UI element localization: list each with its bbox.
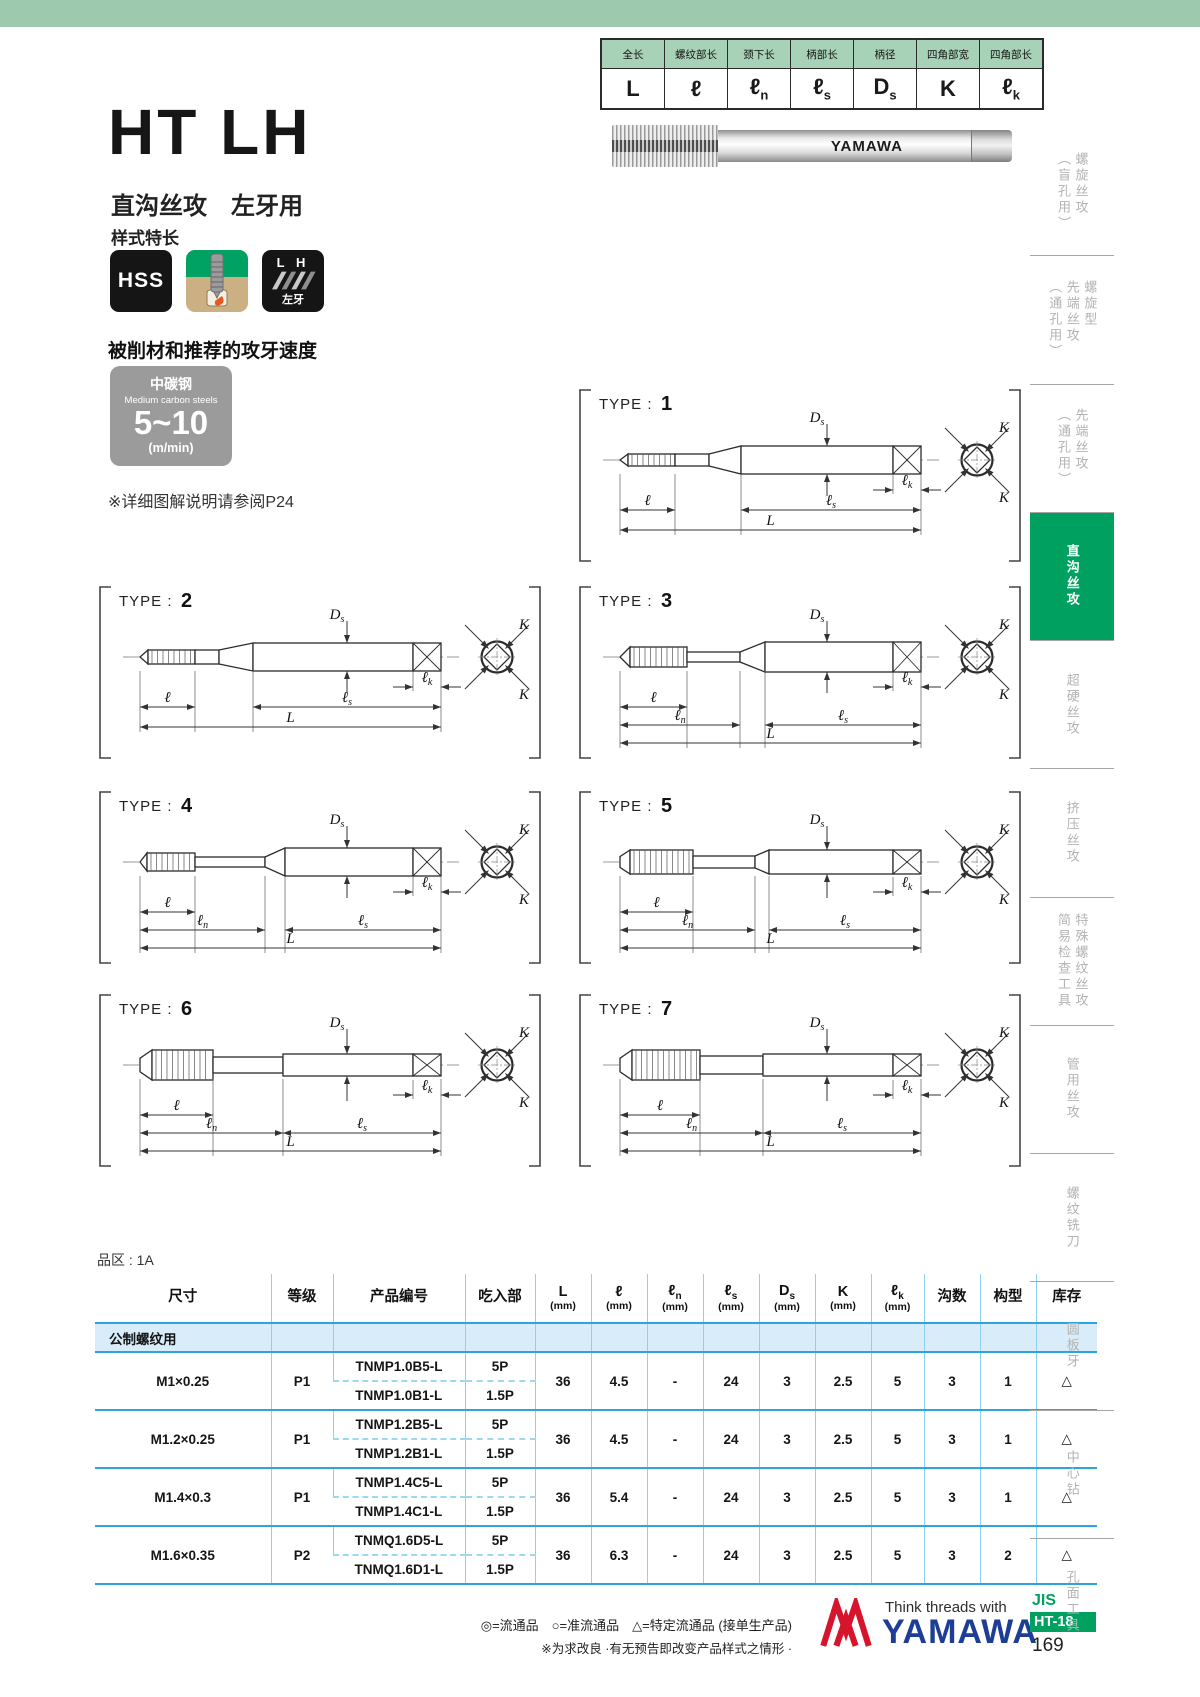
section-cell: [815, 1323, 871, 1352]
sidebar-tab-11[interactable]: 中心钻: [1030, 1411, 1114, 1538]
table-cell: 3: [924, 1526, 980, 1584]
svg-text:K: K: [518, 617, 530, 633]
table-cell: M1×0.25: [95, 1352, 271, 1410]
svg-text:ℓs: ℓs: [358, 913, 368, 931]
svg-text:Ds: Ds: [809, 1015, 825, 1033]
table-cell: 36: [535, 1352, 591, 1410]
legend-name: 颈下长: [728, 39, 791, 69]
svg-text:K: K: [518, 1025, 530, 1041]
legend-name: 螺纹部长: [665, 39, 728, 69]
legend-name: 四角部长: [980, 39, 1044, 69]
legend-symbol: K: [917, 69, 980, 110]
table-cell: 1.5P: [465, 1381, 535, 1410]
svg-text:TYPE :: TYPE :: [599, 798, 653, 815]
table-cell: 3: [924, 1410, 980, 1468]
svg-text:ℓn: ℓn: [686, 1116, 697, 1134]
stock-legend: ◎=流通品 ○=准流通品 △=特定流通品 (接单生产品) ※为求改良 ·有无预告…: [420, 1615, 792, 1657]
sidebar-tab-9[interactable]: 螺纹铣刀: [1030, 1154, 1114, 1281]
svg-text:L: L: [765, 931, 774, 947]
table-cell: 24: [703, 1468, 759, 1526]
table-cell: TNMP1.4C1-L: [333, 1497, 465, 1526]
table-cell: TNMP1.0B5-L: [333, 1352, 465, 1381]
diagram-type-4: TYPE : 4ℓℓsℓnLℓkDsKK: [95, 780, 545, 975]
svg-text:1: 1: [661, 393, 672, 415]
logo-brand: YAMAWA: [882, 1616, 1038, 1648]
svg-text:5: 5: [661, 795, 672, 817]
tap-shank-section: YAMAWA: [718, 130, 971, 162]
svg-text:L: L: [285, 1134, 294, 1150]
table-cell: TNMQ1.6D5-L: [333, 1526, 465, 1555]
speed-unit: (m/min): [110, 441, 232, 455]
table-cell: 1.5P: [465, 1555, 535, 1584]
table-cell: 2.5: [815, 1526, 871, 1584]
svg-text:Ds: Ds: [329, 1015, 345, 1033]
legend-symbol: ℓk: [980, 69, 1044, 110]
svg-text:ℓk: ℓk: [902, 670, 913, 688]
sidebar-tab-3[interactable]: 先端丝攻 （通孔用）: [1030, 385, 1114, 512]
svg-text:ℓn: ℓn: [197, 913, 208, 931]
table-cell: M1.4×0.3: [95, 1468, 271, 1526]
table-cell: 24: [703, 1352, 759, 1410]
table-cell: 5: [871, 1526, 924, 1584]
top-green-bar: [0, 0, 1200, 27]
diagram-type-2: TYPE : 2ℓℓsLℓkDsKK: [95, 575, 545, 770]
svg-text:Ds: Ds: [809, 410, 825, 428]
legend-symbol: L: [601, 69, 665, 110]
table-cell: 1: [980, 1410, 1036, 1468]
table-cell: 3: [924, 1468, 980, 1526]
svg-text:ℓk: ℓk: [902, 473, 913, 491]
section-row: 公制螺纹用: [95, 1323, 1097, 1352]
sidebar-tab-7[interactable]: 特殊螺纹丝攻 简易检查工具: [1030, 898, 1114, 1025]
legend-symbol: ℓn: [728, 69, 791, 110]
left-hand-thread-icon: L H 左牙: [262, 250, 324, 312]
yamawa-logo: Think threads with YAMAWA: [818, 1598, 1038, 1650]
svg-text:K: K: [998, 420, 1010, 436]
table-cell: TNMP1.2B1-L: [333, 1439, 465, 1468]
sidebar-tab-10[interactable]: 圆板牙: [1030, 1282, 1114, 1409]
column-header: 吃入部: [465, 1274, 535, 1323]
svg-text:7: 7: [661, 998, 672, 1020]
table-cell: 3: [759, 1468, 815, 1526]
stock-legend-line1: ◎=流通品 ○=准流通品 △=特定流通品 (接单生产品): [420, 1615, 792, 1634]
column-header: K(mm): [815, 1274, 871, 1323]
svg-text:ℓ: ℓ: [650, 690, 656, 706]
legend-name: 全长: [601, 39, 665, 69]
svg-text:ℓn: ℓn: [206, 1116, 217, 1134]
table-cell: P1: [271, 1468, 333, 1526]
column-header: 沟数: [924, 1274, 980, 1323]
region-label: 品区 : 1A: [97, 1250, 154, 1270]
svg-text:K: K: [518, 892, 530, 908]
table-cell: P2: [271, 1526, 333, 1584]
section-cell: [759, 1323, 815, 1352]
svg-text:ℓk: ℓk: [902, 875, 913, 893]
speed-heading: 被削材和推荐的攻牙速度: [108, 336, 317, 363]
svg-text:Ds: Ds: [329, 812, 345, 830]
column-header: 产品编号: [333, 1274, 465, 1323]
sidebar-tab-1[interactable]: 螺旋丝攻 （盲孔用）: [1030, 128, 1114, 255]
table-cell: 24: [703, 1410, 759, 1468]
diagram-type-3: TYPE : 3ℓℓsℓnLℓkDsKK: [575, 575, 1025, 770]
svg-text:L: L: [765, 726, 774, 742]
svg-text:K: K: [998, 822, 1010, 838]
svg-text:ℓ: ℓ: [164, 690, 170, 706]
svg-text:ℓn: ℓn: [674, 708, 685, 726]
table-cell: -: [647, 1468, 703, 1526]
table-cell: 36: [535, 1410, 591, 1468]
table-cell: 5: [871, 1468, 924, 1526]
section-label: 公制螺纹用: [95, 1323, 271, 1352]
column-header: Ds(mm): [759, 1274, 815, 1323]
sidebar-tab-8[interactable]: 管用丝攻: [1030, 1026, 1114, 1153]
table-cell: 2.5: [815, 1352, 871, 1410]
column-header: ℓs(mm): [703, 1274, 759, 1323]
section-cell: [924, 1323, 980, 1352]
table-cell: 4.5: [591, 1352, 647, 1410]
diagram-type-6: TYPE : 6ℓℓsℓnLℓkDsKK: [95, 983, 545, 1178]
tap-thread-section: [612, 125, 718, 167]
legend-symbol: ℓs: [791, 69, 854, 110]
svg-text:K: K: [518, 687, 530, 703]
svg-text:K: K: [998, 617, 1010, 633]
table-cell: 5P: [465, 1410, 535, 1439]
svg-text:K: K: [998, 892, 1010, 908]
table-cell: -: [647, 1410, 703, 1468]
svg-text:Ds: Ds: [809, 607, 825, 625]
svg-text:L: L: [285, 931, 294, 947]
svg-text:L: L: [765, 513, 774, 529]
svg-text:ℓk: ℓk: [902, 1078, 913, 1096]
section-cell: [703, 1323, 759, 1352]
table-cell: 3: [759, 1526, 815, 1584]
svg-text:2: 2: [181, 590, 192, 612]
svg-text:ℓ: ℓ: [657, 1098, 663, 1114]
table-cell: 5P: [465, 1526, 535, 1555]
svg-text:K: K: [998, 687, 1010, 703]
product-table: 尺寸等级产品编号吃入部L(mm)ℓ(mm)ℓn(mm)ℓs(mm)Ds(mm)K…: [95, 1274, 1097, 1585]
reference-note: ※详细图解说明请参阅P24: [108, 488, 294, 512]
dimension-legend-table: 全长螺纹部长颈下长柄部长柄径四角部宽四角部长 LℓℓnℓsDsKℓk: [600, 38, 1044, 110]
svg-text:ℓk: ℓk: [422, 670, 433, 688]
table-cell: M1.6×0.35: [95, 1526, 271, 1584]
table-cell: TNMP1.2B5-L: [333, 1410, 465, 1439]
speed-range: 5~10: [110, 406, 232, 441]
table-cell: M1.2×0.25: [95, 1410, 271, 1468]
svg-text:K: K: [998, 1025, 1010, 1041]
legend-name: 柄径: [854, 39, 917, 69]
table-cell: -: [647, 1352, 703, 1410]
column-header: ℓ(mm): [591, 1274, 647, 1323]
lh-left-thread-label: 左牙: [282, 291, 304, 307]
section-cell: [333, 1323, 465, 1352]
catalog-page: HT LH 直沟丝攻 左牙用 样式特长 HSS L H: [0, 0, 1200, 1697]
svg-text:4: 4: [181, 795, 193, 817]
table-cell: 3: [759, 1410, 815, 1468]
svg-text:TYPE :: TYPE :: [599, 1001, 653, 1018]
product-row: M1.2×0.25P1TNMP1.2B5-L5P364.5-2432.5531△: [95, 1410, 1097, 1439]
table-cell: 3: [924, 1352, 980, 1410]
blind-hole-tapping-icon: [186, 250, 248, 312]
column-header: 尺寸: [95, 1274, 271, 1323]
tap-square-end: [971, 130, 1012, 162]
product-row: M1×0.25P1TNMP1.0B5-L5P364.5-2432.5531△: [95, 1352, 1097, 1381]
product-row: M1.4×0.3P1TNMP1.4C5-L5P365.4-2432.5531△: [95, 1468, 1097, 1497]
left-hand-coil-icon: [265, 270, 321, 291]
svg-text:ℓk: ℓk: [422, 875, 433, 893]
legend-symbol-row: LℓℓnℓsDsKℓk: [601, 69, 1043, 110]
sidebar-tab-4[interactable]: 直沟丝攻: [1030, 513, 1114, 640]
table-cell: 5.4: [591, 1468, 647, 1526]
column-header: L(mm): [535, 1274, 591, 1323]
yamawa-mark-icon: [818, 1598, 874, 1650]
svg-text:ℓn: ℓn: [682, 913, 693, 931]
table-cell: 1.5P: [465, 1439, 535, 1468]
table-cell: 1: [980, 1468, 1036, 1526]
tap-product-photo: YAMAWA: [612, 114, 1012, 178]
table-cell: 2: [980, 1526, 1036, 1584]
tap-brand-marking: YAMAWA: [831, 138, 903, 155]
table-cell: 36: [535, 1526, 591, 1584]
section-cell: [980, 1323, 1036, 1352]
diagram-type-1: TYPE : 1ℓℓsLℓkDsKK: [575, 378, 1025, 573]
sidebar-tab-12[interactable]: 孔面工具: [1030, 1539, 1114, 1666]
svg-text:ℓs: ℓs: [838, 708, 848, 726]
svg-text:ℓ: ℓ: [173, 1098, 179, 1114]
column-header: ℓk(mm): [871, 1274, 924, 1323]
svg-text:ℓs: ℓs: [840, 913, 850, 931]
svg-text:L: L: [765, 1134, 774, 1150]
table-cell: 5: [871, 1410, 924, 1468]
svg-text:K: K: [518, 822, 530, 838]
disclaimer-note: ※为求改良 ·有无预告即改变产品样式之情形 ·: [420, 1638, 792, 1657]
svg-text:ℓk: ℓk: [422, 1078, 433, 1096]
svg-text:TYPE :: TYPE :: [119, 1001, 173, 1018]
speed-card: 中碳钢 Medium carbon steels 5~10 (m/min): [110, 366, 232, 466]
svg-text:ℓs: ℓs: [357, 1116, 367, 1134]
svg-text:Ds: Ds: [809, 812, 825, 830]
section-cell: [535, 1323, 591, 1352]
legend-name-row: 全长螺纹部长颈下长柄部长柄径四角部宽四角部长: [601, 39, 1043, 69]
table-cell: 1.5P: [465, 1497, 535, 1526]
table-cell: 5: [871, 1352, 924, 1410]
svg-text:K: K: [998, 490, 1010, 506]
table-cell: P1: [271, 1410, 333, 1468]
page-title: HT LH: [108, 100, 311, 164]
column-header: ℓn(mm): [647, 1274, 703, 1323]
tapping-illustration-icon: [186, 250, 248, 312]
table-header-row: 尺寸等级产品编号吃入部L(mm)ℓ(mm)ℓn(mm)ℓs(mm)Ds(mm)K…: [95, 1274, 1097, 1323]
features-section-label: 样式特长: [111, 224, 179, 249]
svg-text:3: 3: [661, 590, 672, 612]
svg-text:TYPE :: TYPE :: [599, 593, 653, 610]
page-subtitle: 直沟丝攻 左牙用: [111, 186, 303, 221]
legend-symbol: ℓ: [665, 69, 728, 110]
column-header: 构型: [980, 1274, 1036, 1323]
svg-text:K: K: [518, 1095, 530, 1111]
table-cell: 5P: [465, 1468, 535, 1497]
legend-symbol: Ds: [854, 69, 917, 110]
svg-text:ℓ: ℓ: [164, 895, 170, 911]
svg-text:Ds: Ds: [329, 607, 345, 625]
sidebar-tab-6[interactable]: 挤压丝攻: [1030, 769, 1114, 896]
column-header: 等级: [271, 1274, 333, 1323]
table-cell: 36: [535, 1468, 591, 1526]
svg-text:TYPE :: TYPE :: [119, 593, 173, 610]
svg-text:ℓ: ℓ: [653, 895, 659, 911]
svg-text:L: L: [285, 710, 294, 726]
diagram-type-7: TYPE : 7ℓℓsℓnLℓkDsKK: [575, 983, 1025, 1178]
table-cell: 24: [703, 1526, 759, 1584]
table-cell: 5P: [465, 1352, 535, 1381]
svg-text:TYPE :: TYPE :: [599, 396, 653, 413]
logo-text: Think threads with YAMAWA: [882, 1599, 1038, 1648]
sidebar-tab-2[interactable]: 螺旋型 先端丝攻 （通孔用）: [1030, 256, 1114, 383]
sidebar-tab-5[interactable]: 超硬丝攻: [1030, 641, 1114, 768]
section-cell: [591, 1323, 647, 1352]
svg-text:ℓs: ℓs: [837, 1116, 847, 1134]
table-cell: P1: [271, 1352, 333, 1410]
table-cell: -: [647, 1526, 703, 1584]
category-sidebar: 螺旋丝攻 （盲孔用）螺旋型 先端丝攻 （通孔用）先端丝攻 （通孔用）直沟丝攻超硬…: [1030, 128, 1114, 1666]
table-cell: 3: [759, 1352, 815, 1410]
hss-material-icon: HSS: [110, 250, 172, 312]
product-row: M1.6×0.35P2TNMQ1.6D5-L5P366.3-2432.5532△: [95, 1526, 1097, 1555]
table-cell: TNMP1.0B1-L: [333, 1381, 465, 1410]
feature-icons: HSS L H 左牙: [110, 250, 324, 312]
table-cell: 2.5: [815, 1410, 871, 1468]
table-cell: 2.5: [815, 1468, 871, 1526]
table-cell: TNMQ1.6D1-L: [333, 1555, 465, 1584]
material-name-cn: 中碳钢: [110, 374, 232, 394]
section-cell: [647, 1323, 703, 1352]
legend-name: 四角部宽: [917, 39, 980, 69]
hss-label: HSS: [118, 269, 164, 293]
section-cell: [871, 1323, 924, 1352]
table-cell: 4.5: [591, 1410, 647, 1468]
svg-text:K: K: [998, 1095, 1010, 1111]
table-cell: 6.3: [591, 1526, 647, 1584]
diagram-type-5: TYPE : 5ℓℓsℓnLℓkDsKK: [575, 780, 1025, 975]
svg-text:6: 6: [181, 998, 192, 1020]
legend-name: 柄部长: [791, 39, 854, 69]
svg-text:ℓ: ℓ: [644, 493, 650, 509]
section-cell: [271, 1323, 333, 1352]
table-cell: 1: [980, 1352, 1036, 1410]
svg-text:TYPE :: TYPE :: [119, 798, 173, 815]
section-cell: [465, 1323, 535, 1352]
table-cell: TNMP1.4C5-L: [333, 1468, 465, 1497]
lh-label: L H: [277, 255, 310, 270]
